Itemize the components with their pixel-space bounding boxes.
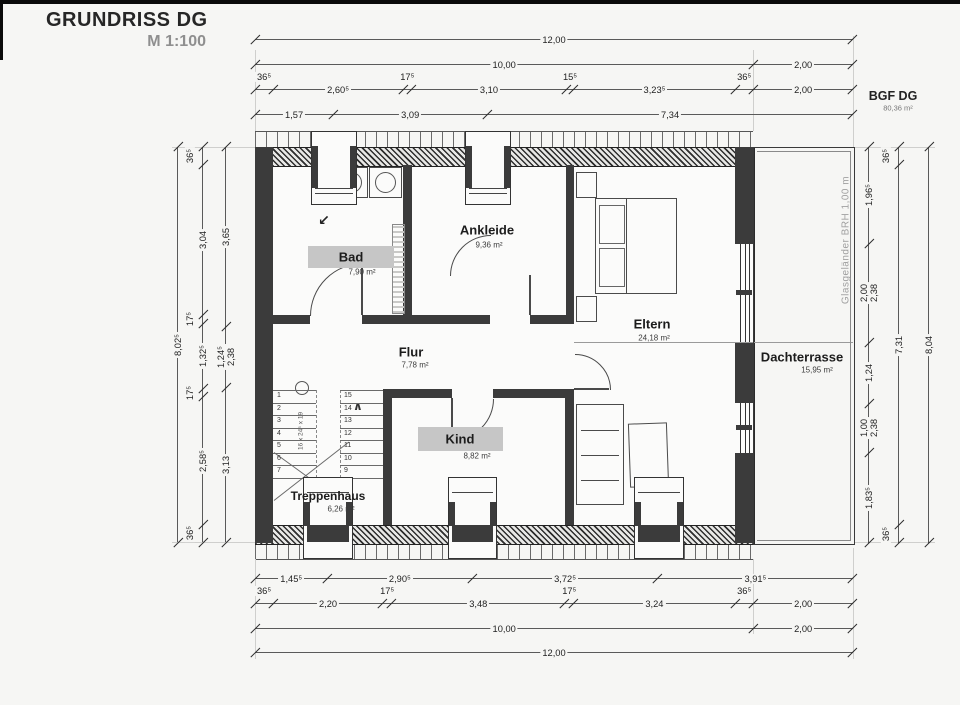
stair-tread-right [340,415,383,416]
dimension-tick [250,35,260,45]
door-leaf-ankleide [529,275,531,315]
dimension-tick [569,599,579,609]
dimension-tick [386,599,396,609]
dimension-label: 3,72⁵ [552,573,578,583]
room-area-treppenhaus: 6,26 m² [327,505,354,514]
dormer-ankleide [465,131,511,205]
dimension-tick [482,110,492,120]
wall-flur-north-3 [530,315,566,324]
dimension-label: 36⁵ [185,147,195,165]
room-area-bad: 7,90 m² [348,268,375,277]
dimension-label: 3,13 [220,454,230,476]
dimension-label: 36⁵ [735,586,753,596]
exterior-wall-right-lower [735,453,753,543]
dimension-label: 17⁵ [560,586,578,596]
dimension-label: 3,24 [643,598,665,608]
photo-edge-left [0,0,3,60]
stair-step-number: 11 [344,442,351,449]
stair-tread-right [340,453,383,454]
extension-line [753,559,754,634]
dimension-chain: 1,96⁵2,002,381,241,002,381,83⁵ [868,147,869,543]
dimension-label: 7,34 [659,109,681,119]
dimension-tick [221,322,231,332]
dimension-tick [864,337,874,347]
dormer-eltern [634,477,684,559]
bgf-area: 80,36 m² [883,104,913,113]
dimension-label: 1,57 [283,109,305,119]
dimension-chain: 1,573,097,34 [255,114,853,115]
dimension-label: 2,60⁵ [325,84,351,94]
extension-line [172,542,255,543]
stair-step-number: 1 [277,392,281,399]
wardrobe [576,404,624,505]
dimension-label: 15⁵ [561,72,579,82]
dimension-label: 7,31 [893,334,903,356]
dimension-label: 8,04 [923,334,933,356]
dimension-tick [407,85,417,95]
stair-direction-icon: ∧ [353,399,363,413]
stair-tread-right [340,428,383,429]
room-label-bad: Bad [339,250,364,265]
stair-tread-left [273,453,316,454]
dimension-label: 2,90⁵ [387,573,413,583]
stair-step-number: 7 [277,467,281,474]
wall-flur-south-1 [392,389,452,398]
dimension-label: 8,02⁵ [172,332,182,358]
glass-railing [757,151,851,541]
dimension-tick [268,85,278,95]
stair-tread-left [273,415,316,416]
room-area-kind: 8,82 m² [463,452,490,461]
dimension-tick [467,574,477,584]
wall-treppenhaus-kind [383,389,392,525]
dimension-tick [864,398,874,408]
dimension-chain: 10,002,00 [255,64,853,65]
room-label-dachterrasse: Dachterrasse [761,350,843,365]
page-title: GRUNDRISS DG [46,9,208,32]
dimension-chain: 12,00 [255,652,853,653]
dimension-label: 12,00 [540,647,567,657]
stair-step-number: 10 [344,455,352,462]
wall-kind-eltern [565,389,574,525]
stair-step-number: 9 [344,467,348,474]
stair-tread-left [273,390,316,391]
dimension-chain: 36⁵3,0417⁵1,32⁵17⁵2,58⁵36⁵ [202,147,203,542]
dimension-label: 3,91⁵ [742,573,768,583]
dimension-tick [221,383,231,393]
dimension-label: 36⁵ [881,525,891,543]
nightstand-top [576,172,597,198]
room-area-ankleide: 9,36 m² [475,241,502,250]
dimension-label: 36⁵ [255,72,273,82]
dimension-label: 17⁵ [378,586,396,596]
drawing-scale: M 1:100 [46,33,206,51]
dimension-label: 1,002,38 [858,417,878,439]
door-leaf-eltern [574,388,609,390]
extension-line [255,559,256,659]
dimension-label: 2,00 [792,59,814,69]
stair-tread-left [273,465,316,466]
dimension-chain: 36⁵2,2017⁵3,4817⁵3,2436⁵2,00 [255,603,853,604]
dimension-label: 3,09 [399,109,421,119]
room-label-kind: Kind [446,432,475,447]
dimension-label: 17⁵ [185,384,195,402]
photo-edge-top [0,0,960,4]
dimension-label: 12,00 [540,34,567,44]
dimension-tick [328,110,338,120]
wall-flur-south-2 [493,389,565,398]
stair-tread-right [340,390,383,391]
dormer-kind [448,477,497,559]
dimension-label: 2,00 [792,598,814,608]
radiator [392,224,405,314]
dimension-chain: 10,002,00 [255,628,853,629]
dormer-bad [311,131,357,205]
stair-tread-right [340,465,383,466]
dimension-label: 17⁵ [185,310,195,328]
washbasin-right [369,167,402,198]
dimension-tick [653,574,663,584]
dimension-label: 36⁵ [255,586,273,596]
stair-tread-left [273,403,316,404]
window-mullion-lower [736,425,752,430]
stair-step-number: 3 [277,417,281,424]
nightstand-bottom [576,296,597,322]
stair-newel-post [295,381,309,395]
dimension-label: 2,20 [317,598,339,608]
dimension-label: 1,24 [863,362,873,384]
dimension-label: 3,65 [220,226,230,248]
stair-step-number: 14 [344,405,352,412]
slope-arrow-icon: ↙ [318,212,330,229]
dimension-chain: 36⁵2,60⁵17⁵3,1015⁵3,23⁵36⁵2,00 [255,89,853,90]
dimension-tick [894,160,904,170]
stair-tread-right [340,440,383,441]
dimension-tick [322,574,332,584]
dimension-label: 2,58⁵ [197,448,207,474]
room-area-eltern: 24,18 m² [638,334,670,343]
dimension-chain: 3,651,24⁵2,383,13 [225,147,226,542]
floor-plan-canvas: GRUNDRISS DG M 1:100 BGF DG 80,36 m² [0,0,960,705]
bgf-label: BGF DG [869,89,918,103]
stair-tread-left [273,428,316,429]
dimension-label: 1,32⁵ [197,343,207,369]
dimension-label: 1,24⁵2,38 [215,344,235,370]
stair-dimension-note: 16 x 24⁵ x 19 [298,412,305,450]
glass-railing-note: Glasgeländer BRH 1,00 m [841,176,852,304]
dimension-label: 3,48 [467,598,489,608]
dimension-label: 2,00 [792,623,814,633]
dimension-tick [198,160,208,170]
dimension-label: 3,23⁵ [642,84,668,94]
room-area-dachterrasse: 15,95 m² [801,366,833,375]
wall-flur-north-2 [362,315,490,324]
exterior-wall-right-upper [735,147,753,244]
room-label-flur: Flur [399,345,424,360]
wall-flur-north-1 [273,315,310,324]
dimension-label: 17⁵ [398,72,416,82]
room-area-flur: 7,78 m² [401,361,428,370]
dimension-tick [730,85,740,95]
dimension-label: 3,10 [478,84,500,94]
dimension-tick [198,519,208,529]
dimension-label: 2,002,38 [858,282,878,304]
room-label-eltern: Eltern [634,317,671,332]
dimension-label: 2,00 [792,84,814,94]
dimension-label: 36⁵ [881,147,891,165]
stair-step-number: 5 [277,442,281,449]
exterior-wall-left [255,147,273,543]
dimension-label: 1,96⁵ [863,182,873,208]
window-mullion-upper [736,290,752,295]
stair-step-number: 15 [344,392,352,399]
dimension-tick [894,520,904,530]
dimension-label: 3,04 [197,229,207,251]
dimension-tick [864,447,874,457]
stair-step-number: 6 [277,455,281,462]
stair-step-number: 2 [277,405,281,412]
dimension-label: 10,00 [491,59,518,69]
dimension-tick [730,599,740,609]
extension-line [853,36,854,147]
dimension-label: 1,83⁵ [863,485,873,511]
dimension-label: 36⁵ [185,524,195,542]
dimension-label: 36⁵ [735,72,753,82]
dimension-chain: 12,00 [255,39,853,40]
dimension-label: 1,45⁵ [278,573,304,583]
stair-tread-left [273,440,316,441]
dimension-chain: 8,02⁵ [177,147,178,542]
dimension-chain: 1,45⁵2,90⁵3,72⁵3,91⁵ [255,578,853,579]
dimension-chain: 8,04 [928,147,929,543]
stair-step-number: 12 [344,430,352,437]
wall-ankleide-eltern [566,165,574,324]
exterior-wall-right-middle [735,342,753,403]
dimension-label: 10,00 [491,623,518,633]
room-label-treppenhaus: Treppenhaus [291,489,366,503]
stair-tread-right [340,403,383,404]
dimension-tick [268,599,278,609]
double-bed [595,198,677,294]
dimension-chain: 36⁵7,3136⁵ [898,147,899,543]
dimension-tick [864,239,874,249]
room-label-ankleide: Ankleide [460,223,514,238]
stair-step-number: 13 [344,417,352,424]
stair-step-number: 4 [277,430,281,437]
